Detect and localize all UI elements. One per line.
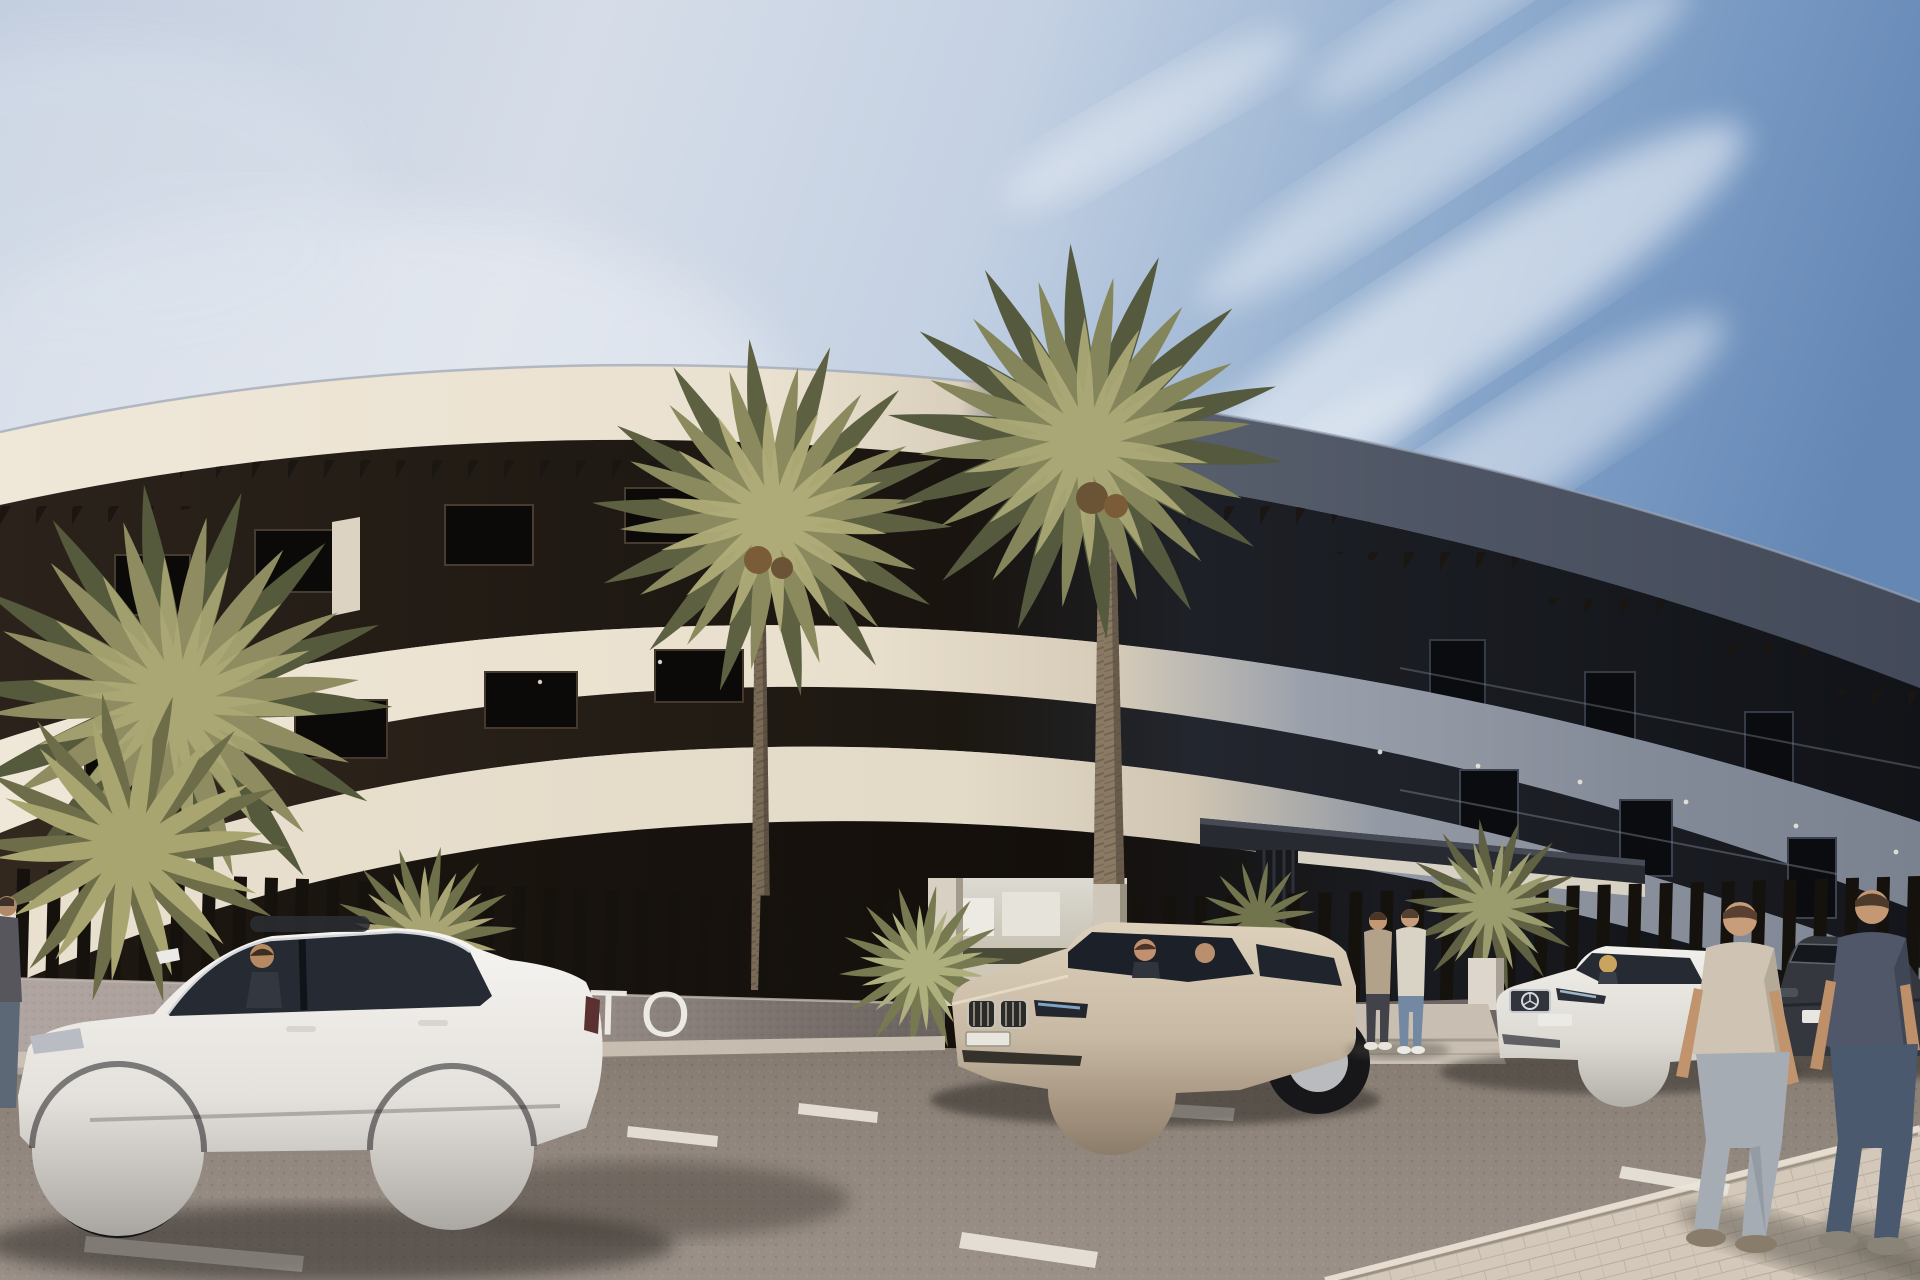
sedan-b-pillar [302, 938, 304, 1010]
sedan-driver [250, 944, 274, 968]
sedan-door-handle-2 [418, 1020, 448, 1026]
render-stage: TO [0, 0, 1920, 1280]
suv-plate [966, 1032, 1010, 1046]
saloon-driver [1599, 955, 1617, 973]
scene-render: TO [0, 0, 1920, 1280]
sedan-door-handle-1 [286, 1026, 316, 1032]
sedan-sunroof [250, 916, 370, 932]
suv-driver [1134, 939, 1156, 961]
terrace-divider-pier [332, 517, 360, 616]
wall-sign-text: TO [588, 976, 706, 1051]
sedan-taillight [584, 996, 600, 1034]
suv-passenger [1195, 943, 1215, 963]
saloon-plate [1538, 1014, 1572, 1026]
